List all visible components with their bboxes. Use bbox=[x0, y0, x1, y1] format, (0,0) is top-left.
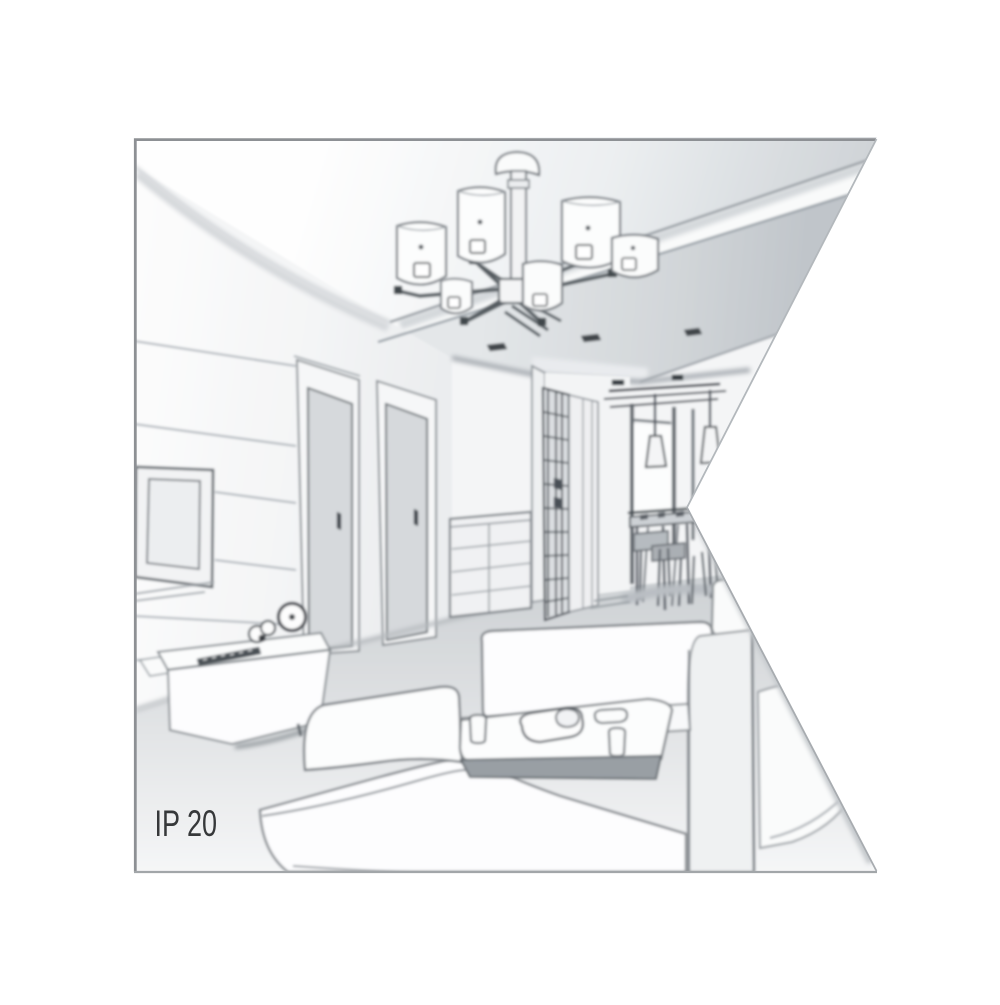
svg-text:IP 20: IP 20 bbox=[155, 803, 218, 844]
